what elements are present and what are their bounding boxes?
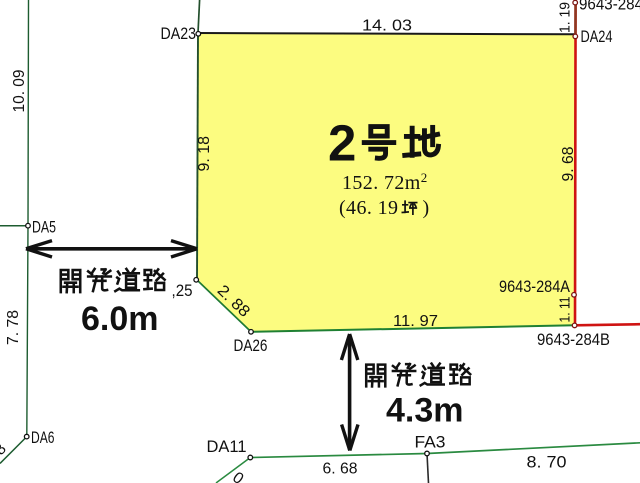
svg-text:10. 09: 10. 09: [11, 69, 28, 112]
svg-text:DA6: DA6: [31, 429, 55, 447]
svg-text:6.0m: 6.0m: [81, 300, 159, 338]
svg-text:14. 03: 14. 03: [362, 18, 412, 35]
svg-text:4.3m: 4.3m: [386, 392, 464, 430]
svg-text:FA3: FA3: [415, 433, 446, 451]
svg-text:1. 11: 1. 11: [557, 297, 574, 323]
svg-text:7. 78: 7. 78: [5, 310, 22, 345]
svg-text:DA5: DA5: [32, 219, 56, 237]
svg-text:9. 18: 9. 18: [196, 136, 213, 172]
svg-text:(46. 19: (46. 19: [339, 197, 398, 219]
svg-text:1. 19: 1. 19: [556, 2, 573, 33]
svg-text:152. 72m2: 152. 72m2: [342, 170, 428, 194]
svg-text:9. 68: 9. 68: [560, 146, 577, 181]
svg-text:6. 68: 6. 68: [323, 460, 358, 477]
svg-text:9643-284A: 9643-284A: [499, 278, 570, 296]
svg-text:DA26: DA26: [234, 337, 268, 355]
svg-text:9643-284: 9643-284: [579, 0, 640, 13]
svg-text:DA11: DA11: [207, 438, 247, 456]
svg-text:2: 2: [328, 115, 356, 172]
svg-text:,25: ,25: [172, 282, 193, 300]
svg-text:8. 70: 8. 70: [527, 452, 567, 471]
svg-text:DA24: DA24: [581, 28, 613, 46]
svg-text:DA23: DA23: [161, 25, 197, 43]
svg-text:): ): [423, 197, 430, 219]
svg-text:9643-284B: 9643-284B: [537, 331, 610, 349]
svg-text:11. 97: 11. 97: [393, 313, 438, 330]
